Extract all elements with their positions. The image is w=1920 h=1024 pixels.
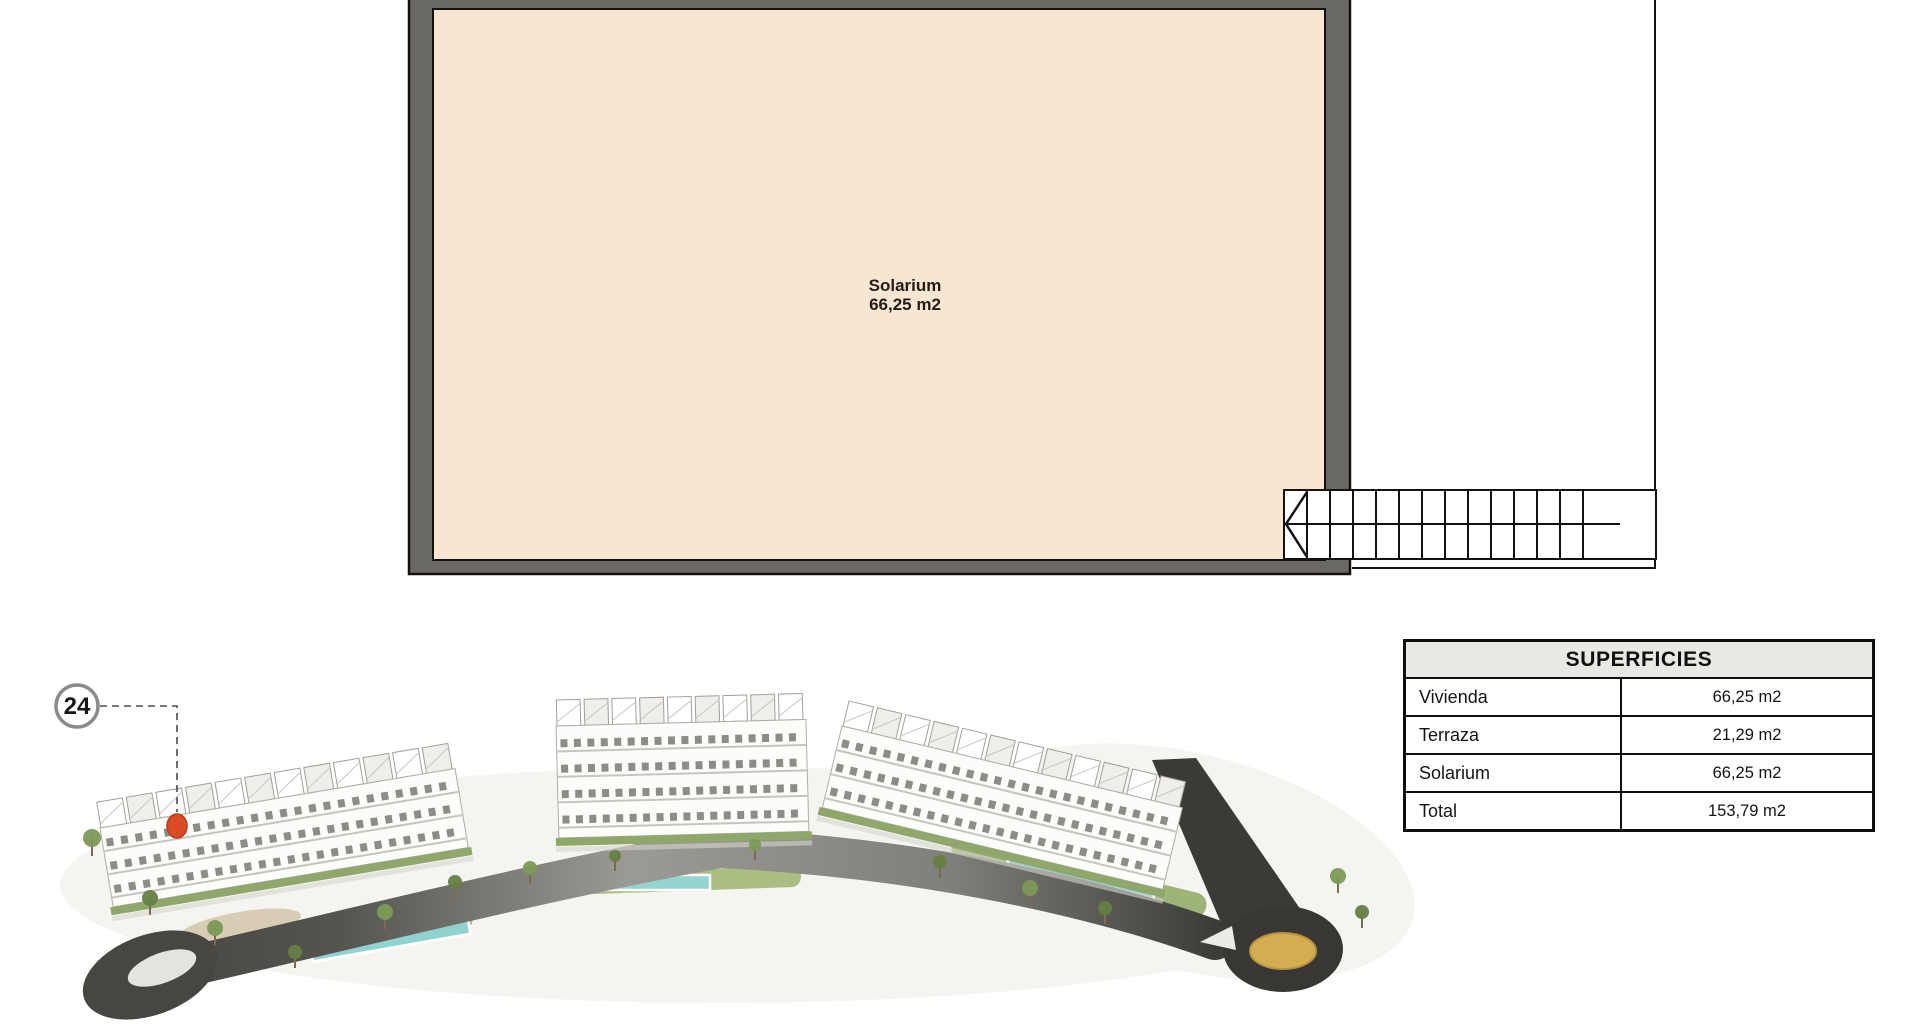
window: [616, 814, 623, 822]
window: [273, 857, 281, 866]
palm-tree-icon: [377, 904, 393, 920]
palm-tree-icon: [523, 861, 537, 875]
window: [352, 796, 360, 805]
window: [298, 829, 306, 838]
window: [308, 804, 316, 813]
window: [589, 815, 596, 823]
window: [763, 759, 770, 767]
window: [356, 820, 364, 829]
window: [642, 762, 649, 770]
window: [110, 861, 118, 870]
window: [428, 808, 436, 817]
window: [560, 739, 567, 747]
window: [153, 854, 161, 863]
window: [628, 763, 635, 771]
window: [709, 761, 716, 769]
window: [681, 736, 688, 744]
building: [552, 693, 812, 852]
window: [749, 734, 756, 742]
row-value: 153,79 m2: [1622, 793, 1872, 829]
window: [683, 812, 690, 820]
window: [207, 821, 215, 830]
row-label: Terraza: [1406, 717, 1622, 753]
row-label: Total: [1406, 793, 1622, 829]
room-label-area: 66,25 m2: [869, 295, 941, 314]
window: [601, 764, 608, 772]
window: [602, 789, 609, 797]
window: [251, 813, 259, 822]
table-row: Terraza 21,29 m2: [1406, 717, 1872, 755]
unit-24-highlight-dot: [167, 814, 187, 838]
row-value: 66,25 m2: [1622, 679, 1872, 715]
window: [723, 786, 730, 794]
window: [669, 787, 676, 795]
window: [641, 737, 648, 745]
window: [302, 853, 310, 862]
window: [337, 799, 345, 808]
window: [171, 874, 179, 883]
window: [168, 851, 176, 860]
palm-tree-icon: [1355, 905, 1369, 919]
window: [589, 789, 596, 797]
window: [561, 765, 568, 773]
window: [777, 810, 784, 818]
window: [629, 788, 636, 796]
window: [710, 786, 717, 794]
window: [736, 785, 743, 793]
window: [562, 815, 569, 823]
window: [791, 810, 798, 818]
window: [106, 838, 114, 847]
window: [710, 812, 717, 820]
palm-tree-icon: [207, 920, 223, 936]
window: [628, 737, 635, 745]
palm-tree-icon: [749, 839, 761, 851]
window: [240, 839, 248, 848]
window: [424, 784, 432, 793]
window: [776, 759, 783, 767]
window: [668, 736, 675, 744]
window: [588, 764, 595, 772]
window: [323, 801, 331, 810]
window: [574, 764, 581, 772]
aerial-render: [60, 693, 1439, 1024]
window: [442, 805, 450, 814]
window: [331, 848, 339, 857]
roundabout-center: [1250, 933, 1316, 969]
window: [737, 811, 744, 819]
window: [670, 813, 677, 821]
window: [135, 833, 143, 842]
palm-tree-icon: [1098, 901, 1112, 915]
window: [655, 762, 662, 770]
window: [157, 877, 165, 886]
window: [345, 845, 353, 854]
window: [696, 787, 703, 795]
table-row: Solarium 66,25 m2: [1406, 755, 1872, 793]
window: [395, 789, 403, 798]
window: [576, 815, 583, 823]
palm-tree-icon: [1022, 880, 1038, 896]
window: [669, 762, 676, 770]
palm-tree-icon: [448, 875, 462, 889]
window: [643, 813, 650, 821]
table-row: Vivienda 66,25 m2: [1406, 679, 1872, 717]
window: [775, 734, 782, 742]
window: [193, 823, 201, 832]
plan-sheet: Solarium 66,25 m2: [0, 0, 1920, 1024]
window: [642, 788, 649, 796]
window: [381, 792, 389, 801]
window: [601, 738, 608, 746]
window: [615, 763, 622, 771]
window: [735, 735, 742, 743]
palm-tree-icon: [288, 945, 302, 959]
window: [366, 794, 374, 803]
window: [615, 789, 622, 797]
window: [182, 849, 190, 858]
window: [736, 760, 743, 768]
window: [603, 814, 610, 822]
window: [683, 787, 690, 795]
row-label: Vivienda: [1406, 679, 1622, 715]
window: [327, 824, 335, 833]
window: [695, 736, 702, 744]
window: [750, 785, 757, 793]
window: [695, 761, 702, 769]
window: [790, 784, 797, 792]
window: [186, 872, 194, 881]
table-row: Total 153,79 m2: [1406, 793, 1872, 829]
palm-tree-icon: [83, 829, 101, 847]
staircase: [1284, 490, 1656, 568]
window: [764, 810, 771, 818]
window: [269, 834, 277, 843]
window: [374, 840, 382, 849]
window: [114, 884, 122, 893]
palm-tree-icon: [1330, 868, 1346, 884]
window: [722, 735, 729, 743]
window: [654, 737, 661, 745]
window: [265, 811, 273, 820]
window: [279, 809, 287, 818]
window: [414, 810, 422, 819]
unit-number: 24: [64, 693, 91, 720]
window: [139, 856, 147, 865]
palm-tree-icon: [933, 855, 947, 869]
window: [697, 812, 704, 820]
window: [417, 833, 425, 842]
window: [312, 827, 320, 836]
window: [432, 831, 440, 840]
window: [789, 733, 796, 741]
window: [236, 816, 244, 825]
window: [225, 841, 233, 850]
window: [763, 785, 770, 793]
window: [258, 860, 266, 869]
window: [789, 759, 796, 767]
window: [656, 813, 663, 821]
window: [410, 787, 418, 796]
window: [316, 850, 324, 859]
window: [254, 837, 262, 846]
window: [120, 835, 128, 844]
window: [587, 738, 594, 746]
window: [574, 739, 581, 747]
palm-tree-icon: [142, 890, 158, 906]
window: [222, 818, 230, 827]
row-value: 66,25 m2: [1622, 755, 1872, 791]
window: [244, 862, 252, 871]
window: [128, 882, 136, 891]
window: [722, 760, 729, 768]
floor-plan: Solarium 66,25 m2: [409, 0, 1656, 574]
window: [287, 855, 295, 864]
window: [751, 811, 758, 819]
window: [439, 782, 447, 791]
window: [215, 867, 223, 876]
row-label: Solarium: [1406, 755, 1622, 791]
palm-tree-icon: [609, 850, 621, 862]
table-title: SUPERFICIES: [1406, 642, 1872, 679]
window: [229, 865, 237, 874]
room-label-name: Solarium: [869, 276, 942, 295]
window: [403, 836, 411, 845]
window: [446, 828, 454, 837]
row-value: 21,29 m2: [1622, 717, 1872, 753]
window: [749, 760, 756, 768]
window: [370, 817, 378, 826]
window: [197, 846, 205, 855]
window: [682, 761, 689, 769]
window: [614, 738, 621, 746]
window: [294, 806, 302, 815]
window: [283, 832, 291, 841]
window: [385, 815, 393, 824]
window: [562, 790, 569, 798]
window: [149, 830, 157, 839]
window: [708, 735, 715, 743]
window: [388, 838, 396, 847]
window: [630, 814, 637, 822]
window: [143, 879, 151, 888]
window: [200, 869, 208, 878]
window: [360, 843, 368, 852]
window: [124, 858, 132, 867]
window: [575, 790, 582, 798]
window: [724, 811, 731, 819]
window: [777, 784, 784, 792]
window: [656, 788, 663, 796]
window: [762, 734, 769, 742]
window: [341, 822, 349, 831]
window: [211, 844, 219, 853]
superficies-table: SUPERFICIES Vivienda 66,25 m2 Terraza 21…: [1403, 639, 1875, 832]
window: [399, 812, 407, 821]
